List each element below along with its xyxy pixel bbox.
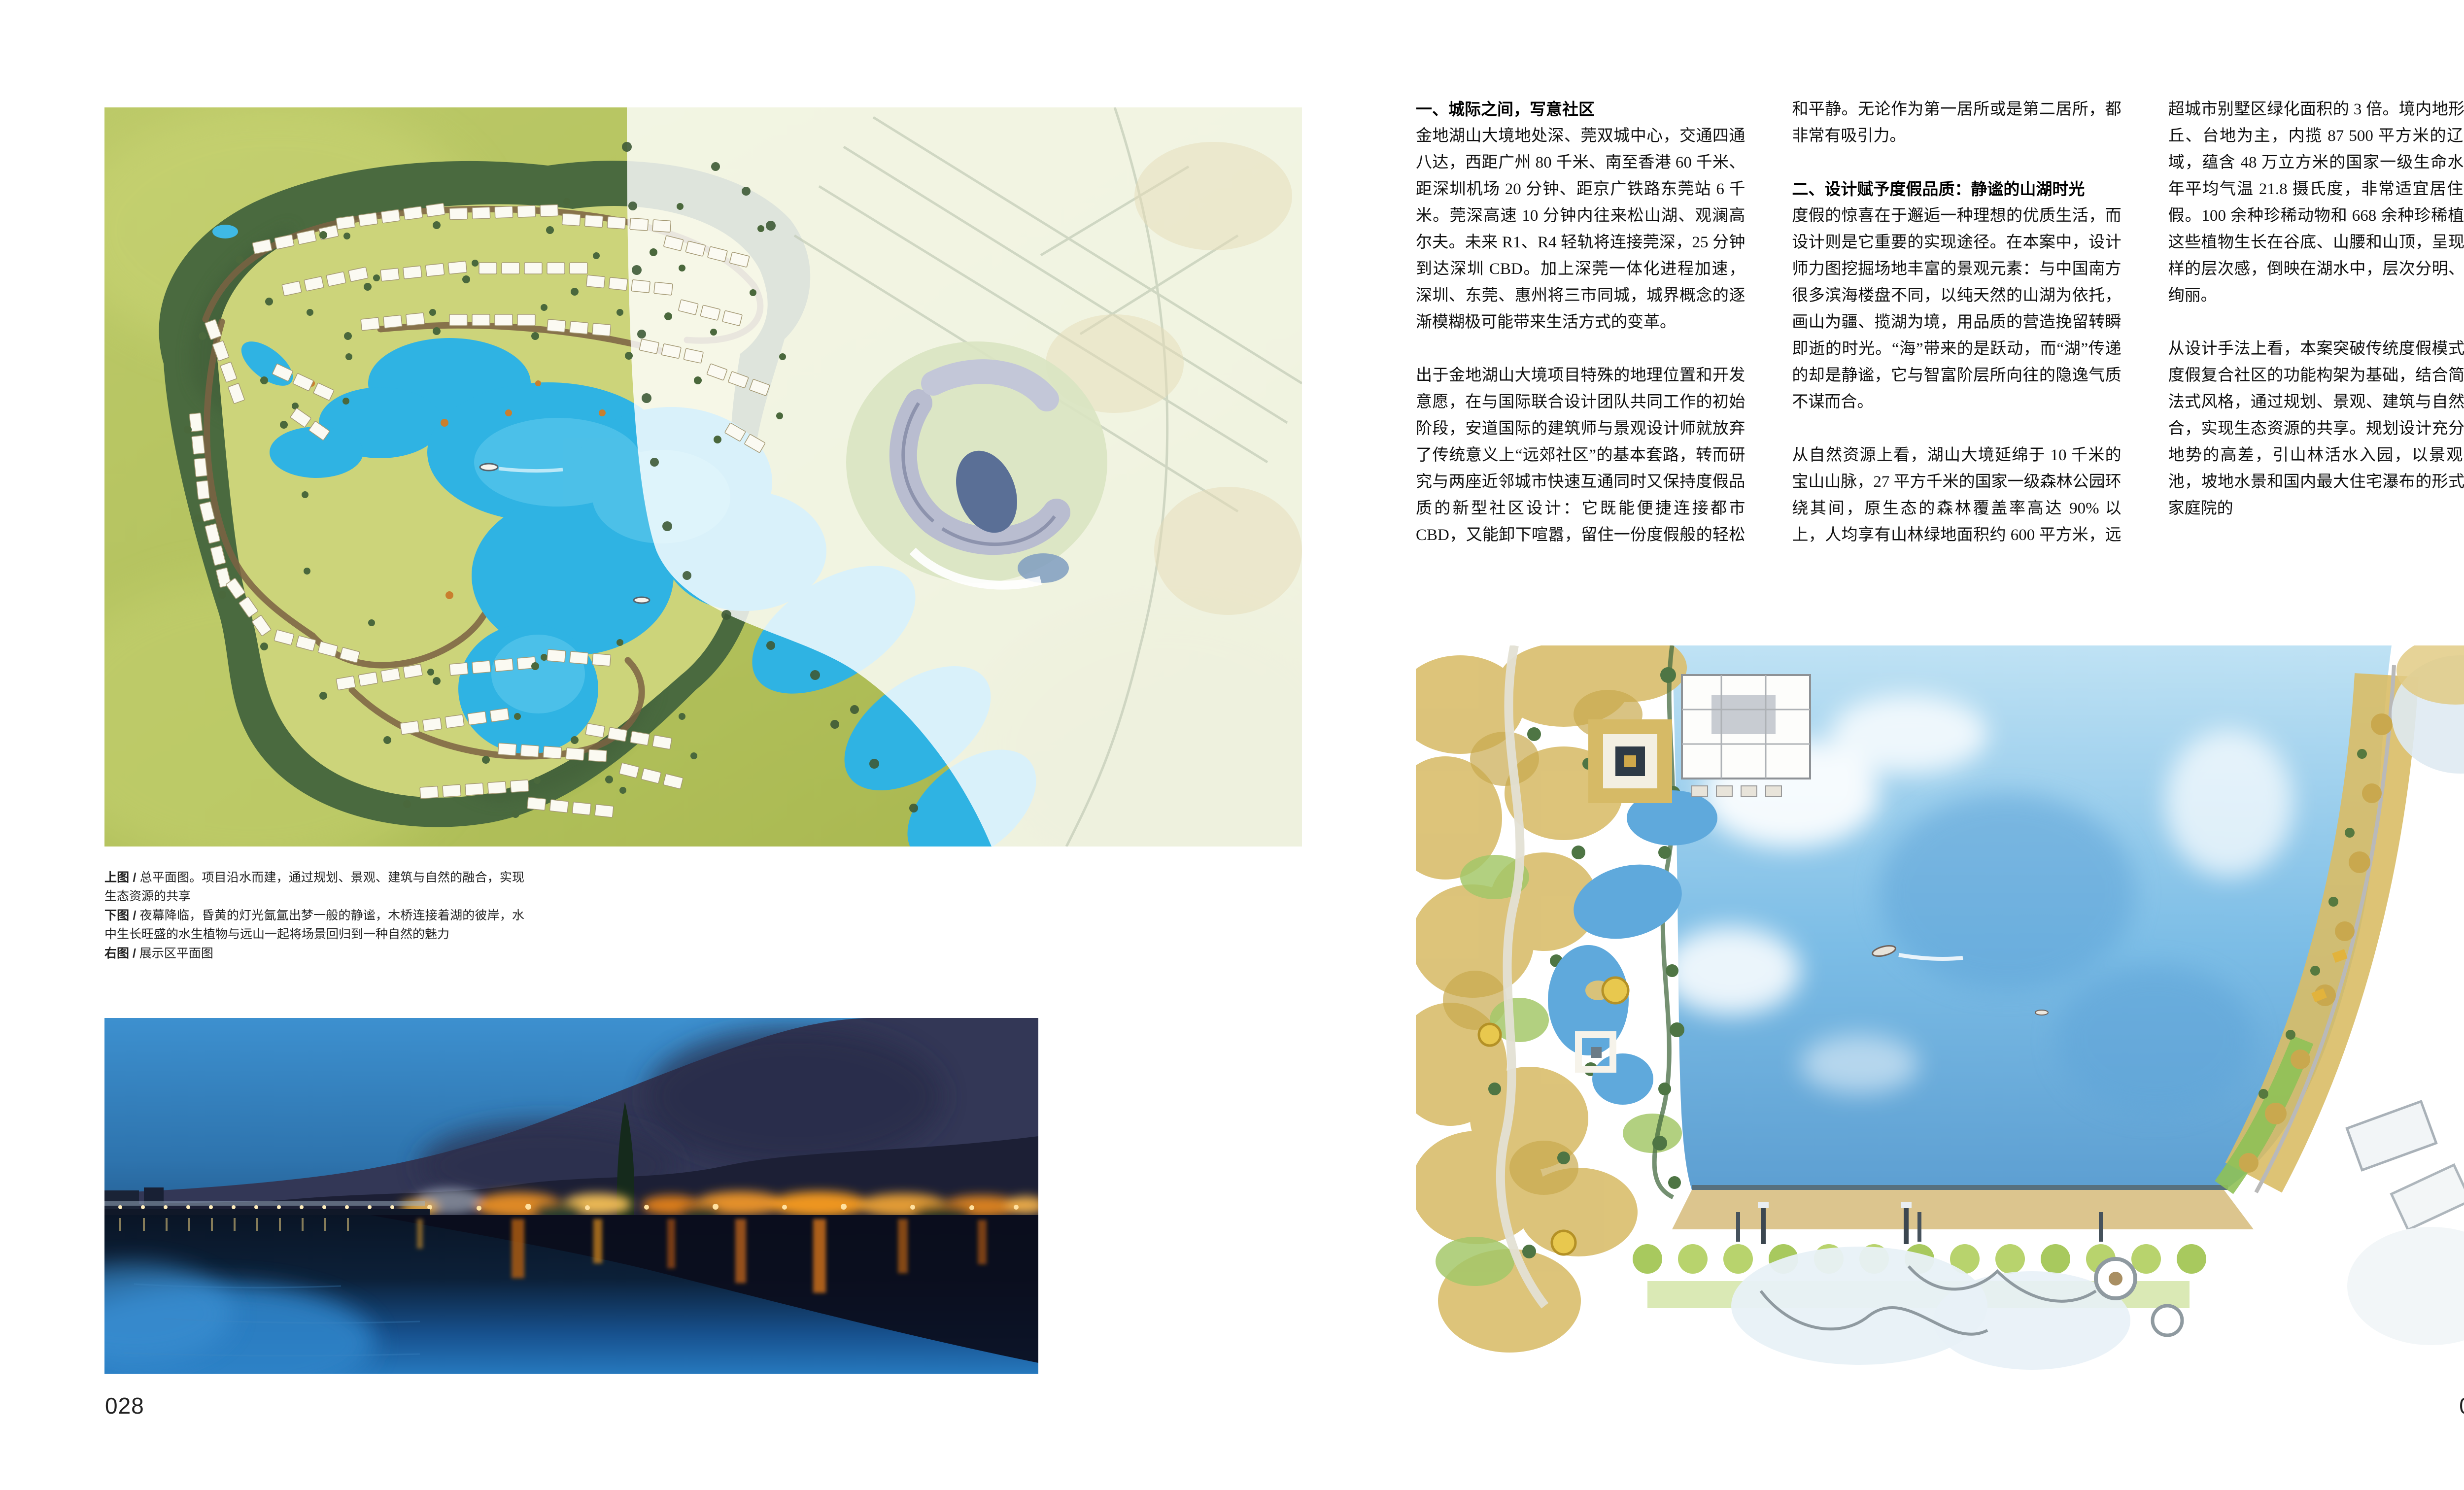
caption-text: 总平面图。项目沿水而建，通过规划、景观、建筑与自然的融合，实现生态资源的共享 bbox=[104, 871, 524, 903]
master-plan-figure bbox=[104, 107, 1302, 847]
detail-plan-figure bbox=[1416, 645, 2464, 1375]
caption-text: 夜幕降临，昏黄的灯光氤氲出梦一般的静谧，木桥连接着湖的彼岸，水中生长旺盛的水生植… bbox=[104, 909, 524, 941]
body-paragraph: 度假的惊喜在于邂逅一种理想的优质生活，而设计则是它重要的实现途径。在本案中，设计… bbox=[1792, 203, 2121, 415]
caption-label: 上图 / bbox=[104, 871, 140, 884]
body-paragraph: 从设计手法上看，本案突破传统度假模式，以度假复合社区的功能构架为基础，结合简约的… bbox=[2168, 336, 2464, 522]
formal-garden bbox=[1588, 719, 1672, 803]
caption-block: 上图 / 总平面图。项目沿水而建，通过规划、景观、建筑与自然的融合，实现生态资源… bbox=[104, 868, 524, 963]
article-columns: 一、城际之间，写意社区 金地湖山大境地处深、莞双城中心，交通四通八达，西距广州 … bbox=[1416, 96, 2464, 570]
small-pond bbox=[212, 225, 238, 238]
dam bbox=[1672, 1190, 2254, 1229]
caption-row: 上图 / 总平面图。项目沿水而建，通过规划、景观、建筑与自然的融合，实现生态资源… bbox=[104, 868, 524, 906]
caption-label: 右图 / bbox=[104, 947, 139, 960]
master-plan-illustration bbox=[104, 107, 1302, 847]
night-lake-photo bbox=[104, 1018, 1038, 1374]
book-spread: 上图 / 总平面图。项目沿水而建，通过规划、景观、建筑与自然的融合，实现生态资源… bbox=[0, 0, 2464, 1490]
detail-plan-illustration bbox=[1416, 645, 2464, 1375]
page-number-right: 029 bbox=[2425, 1392, 2464, 1419]
caption-row: 右图 / 展示区平面图 bbox=[104, 944, 524, 963]
clubhouse-buildings bbox=[1682, 675, 1810, 797]
night-photo-figure bbox=[104, 1018, 1038, 1374]
caption-text: 展示区平面图 bbox=[139, 947, 213, 960]
section-heading: 一、城际之间，写意社区 bbox=[1416, 96, 1745, 123]
caption-label: 下图 / bbox=[104, 909, 140, 922]
caption-row: 下图 / 夜幕降临，昏黄的灯光氤氲出梦一般的静谧，木桥连接着湖的彼岸，水中生长旺… bbox=[104, 906, 524, 944]
section-heading: 二、设计赋予度假品质：静谧的山湖时光 bbox=[1792, 176, 2121, 203]
page-number-left: 028 bbox=[105, 1392, 144, 1419]
body-paragraph: 金地湖山大境地处深、莞双城中心，交通四通八达，西距广州 80 千米、南至香港 6… bbox=[1416, 123, 1745, 336]
